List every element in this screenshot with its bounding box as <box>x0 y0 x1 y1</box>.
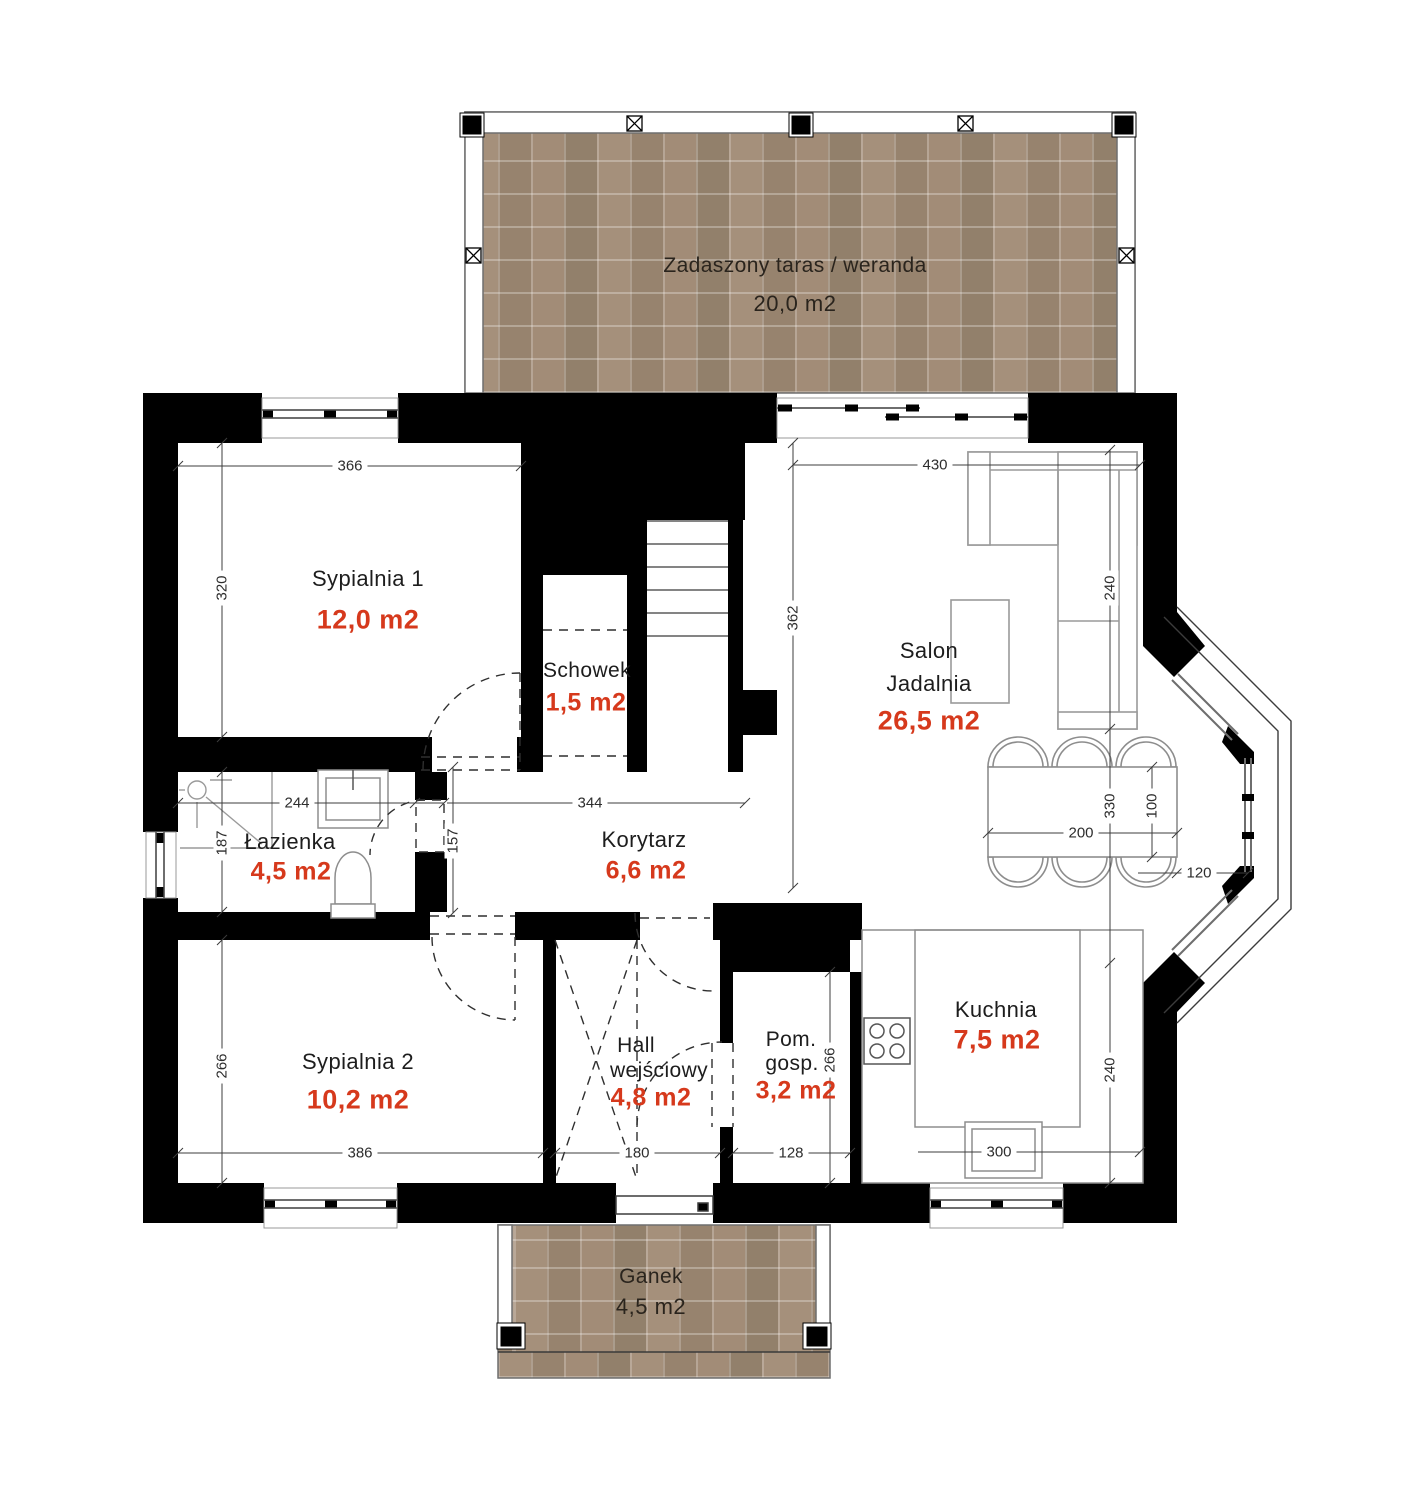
salon-label-2: Jadalnia <box>886 671 971 697</box>
floor-plan: Zadaszony taras / weranda 20,0 m2 Sypial… <box>0 0 1419 1500</box>
lazienka-area: 4,5 m2 <box>251 858 332 887</box>
entry-door <box>616 1196 713 1214</box>
dim-syp1-height: 320 <box>214 570 231 605</box>
dim-salon-height: 362 <box>785 600 802 635</box>
dim-salon-width: 430 <box>917 457 952 474</box>
plan-linework <box>0 0 1419 1500</box>
hall-label-2: wejściowy <box>610 1059 708 1083</box>
dim-lazienka-width: 244 <box>279 795 314 812</box>
salon-area: 26,5 m2 <box>878 706 981 737</box>
syp2-label: Sypialnia 2 <box>302 1049 414 1075</box>
stove <box>864 1018 910 1064</box>
hall-area: 4,8 m2 <box>611 1084 692 1113</box>
ganek-area: 4,5 m2 <box>616 1294 686 1320</box>
syp1-area: 12,0 m2 <box>317 605 420 636</box>
pomgosp-label-2: gosp. <box>765 1052 818 1076</box>
pomgosp-area: 3,2 m2 <box>756 1077 837 1106</box>
terrace-area: 20,0 m2 <box>754 291 837 317</box>
hall-label-1: Hall <box>617 1034 655 1058</box>
schowek-label: Schowek <box>543 659 631 683</box>
bathroom-sink <box>318 770 388 828</box>
terrace-sliding-door <box>777 398 1028 438</box>
terrace-label: Zadaszony taras / weranda <box>663 254 926 278</box>
window-syp2 <box>264 1188 397 1228</box>
syp1-label: Sypialnia 1 <box>312 566 424 592</box>
kuchnia-area: 7,5 m2 <box>953 1025 1040 1056</box>
terrace-structure <box>465 112 1135 393</box>
dim-lazienka-door: 157 <box>445 823 462 858</box>
dim-lazienka-height: 187 <box>214 825 231 860</box>
dim-sofa-depth: 240 <box>1102 570 1119 605</box>
schowek-area: 1,5 m2 <box>546 689 627 718</box>
dim-hall-width: 180 <box>619 1145 654 1162</box>
korytarz-label: Korytarz <box>601 827 686 853</box>
terrace-anchor-markers <box>466 116 1134 263</box>
dim-korytarz-width: 344 <box>572 795 607 812</box>
interior-walls <box>178 443 862 1183</box>
syp2-area: 10,2 m2 <box>307 1085 410 1116</box>
dim-table-length: 200 <box>1063 825 1098 842</box>
window-lazienka <box>146 832 176 898</box>
dim-syp2-width: 386 <box>342 1145 377 1162</box>
dim-syp2-height: 266 <box>214 1048 231 1083</box>
porch-posts <box>497 1323 831 1349</box>
window-syp1 <box>262 398 398 438</box>
ganek-label: Ganek <box>619 1265 683 1289</box>
stairs <box>647 521 728 636</box>
korytarz-area: 6,6 m2 <box>606 857 687 886</box>
dim-bay-gap: 120 <box>1181 865 1216 882</box>
lazienka-label: Łazienka <box>244 829 335 855</box>
pomgosp-label-1: Pom. <box>766 1028 817 1052</box>
toilet <box>331 852 375 918</box>
dim-sink-width: 300 <box>981 1144 1016 1161</box>
kuchnia-label: Kuchnia <box>955 997 1037 1023</box>
salon-label-1: Salon <box>900 638 958 664</box>
dim-table-width: 100 <box>1144 788 1161 823</box>
dim-syp1-width: 366 <box>332 458 367 475</box>
dim-pomgosp-width: 128 <box>773 1145 808 1162</box>
dim-dining-length: 330 <box>1102 788 1119 823</box>
dim-pomgosp-height: 266 <box>822 1042 839 1077</box>
dim-kuchnia-height: 240 <box>1102 1052 1119 1087</box>
window-kuchnia <box>930 1188 1063 1228</box>
